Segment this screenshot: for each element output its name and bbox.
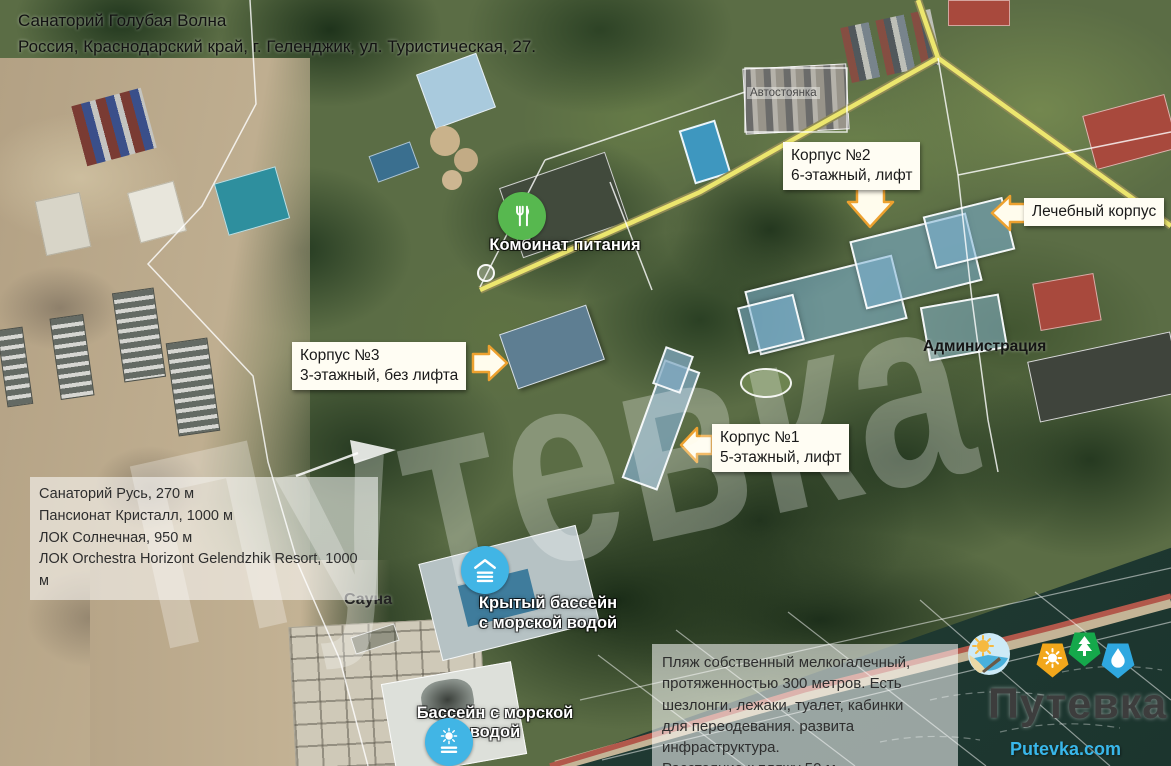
nearby-line: ЛОК Orchestra Horizont Gelendzhik Resort… [39,549,369,593]
korpus1-arrow-icon [681,428,712,462]
outdoor-pool-icon [425,718,473,766]
korpus3-title: Корпус №3 [300,346,458,366]
korpus2-callout: Корпус №2 6-этажный, лифт [783,142,920,190]
nearby-line: Пансионат Кристалл, 1000 м [39,506,369,528]
putevka-logo-text: Путевка [988,680,1167,729]
indoor-pool-label-line2: с морской водой [438,614,658,634]
korpus1-subtitle: 5-этажный, лифт [720,448,841,468]
beach-line: Расстояние к пляжу 50 м. [662,758,948,766]
nearby-pointer-arrow [296,440,396,476]
medical-callout: Лечебный корпус [1024,198,1164,226]
nearby-line: Санаторий Русь, 270 м [39,484,369,506]
header-block: Санаторий Голубая Волна Россия, Краснода… [18,8,536,61]
korpus1-title: Корпус №1 [720,428,841,448]
korpus3-subtitle: 3-этажный, без лифта [300,366,458,386]
page-title: Санаторий Голубая Волна [18,8,536,34]
korpus2-title: Корпус №2 [791,146,912,166]
medical-title: Лечебный корпус [1032,202,1156,222]
administration-label: Администрация [923,338,1046,356]
korpus2-arrow-icon [848,186,893,227]
beach-line: протяженностью 300 метров. Есть [662,673,948,694]
indoor-pool-label: Крытый бассейн с морской водой [438,594,658,634]
dining-label: Комбинат питания [470,236,660,255]
water-drop-badge-icon [1101,643,1135,684]
sun-badge-icon [1036,643,1069,683]
parking-label: Автостоянка [747,87,820,99]
korpus2-subtitle: 6-этажный, лифт [791,166,912,186]
map-canvas: Путевка Санаторий Голубая Волна Россия, … [0,0,1171,766]
indoor-pool-label-line1: Крытый бассейн [438,594,658,614]
nearby-objects-box: Санаторий Русь, 270 м Пансионат Кристалл… [30,477,378,600]
beach-line: для переодевания. развита инфраструктура… [662,716,948,759]
beach-line: Пляж собственный мелкогалечный, [662,652,948,673]
beach-line: шезлонги, лежаки, туалет, кабинки [662,695,948,716]
putevka-website-link[interactable]: Putevka.com [1010,739,1121,760]
korpus1-callout: Корпус №1 5-этажный, лифт [712,424,849,472]
restaurant-icon [498,192,546,240]
indoor-pool-icon [461,546,509,594]
nearby-line: ЛОК Солнечная, 950 м [39,528,369,550]
medical-arrow-icon [992,196,1026,230]
beach-logo-icon [968,633,1010,675]
tree-badge-icon [1068,632,1101,672]
outdoor-pool-label: Бассейн с морской водой [390,704,600,742]
korpus3-arrow-icon [473,346,507,380]
beach-info-box: Пляж собственный мелкогалечный, протяжен… [652,644,958,766]
address-line: Россия, Краснодарский край, г. Геленджик… [18,34,536,60]
korpus3-callout: Корпус №3 3-этажный, без лифта [292,342,466,390]
